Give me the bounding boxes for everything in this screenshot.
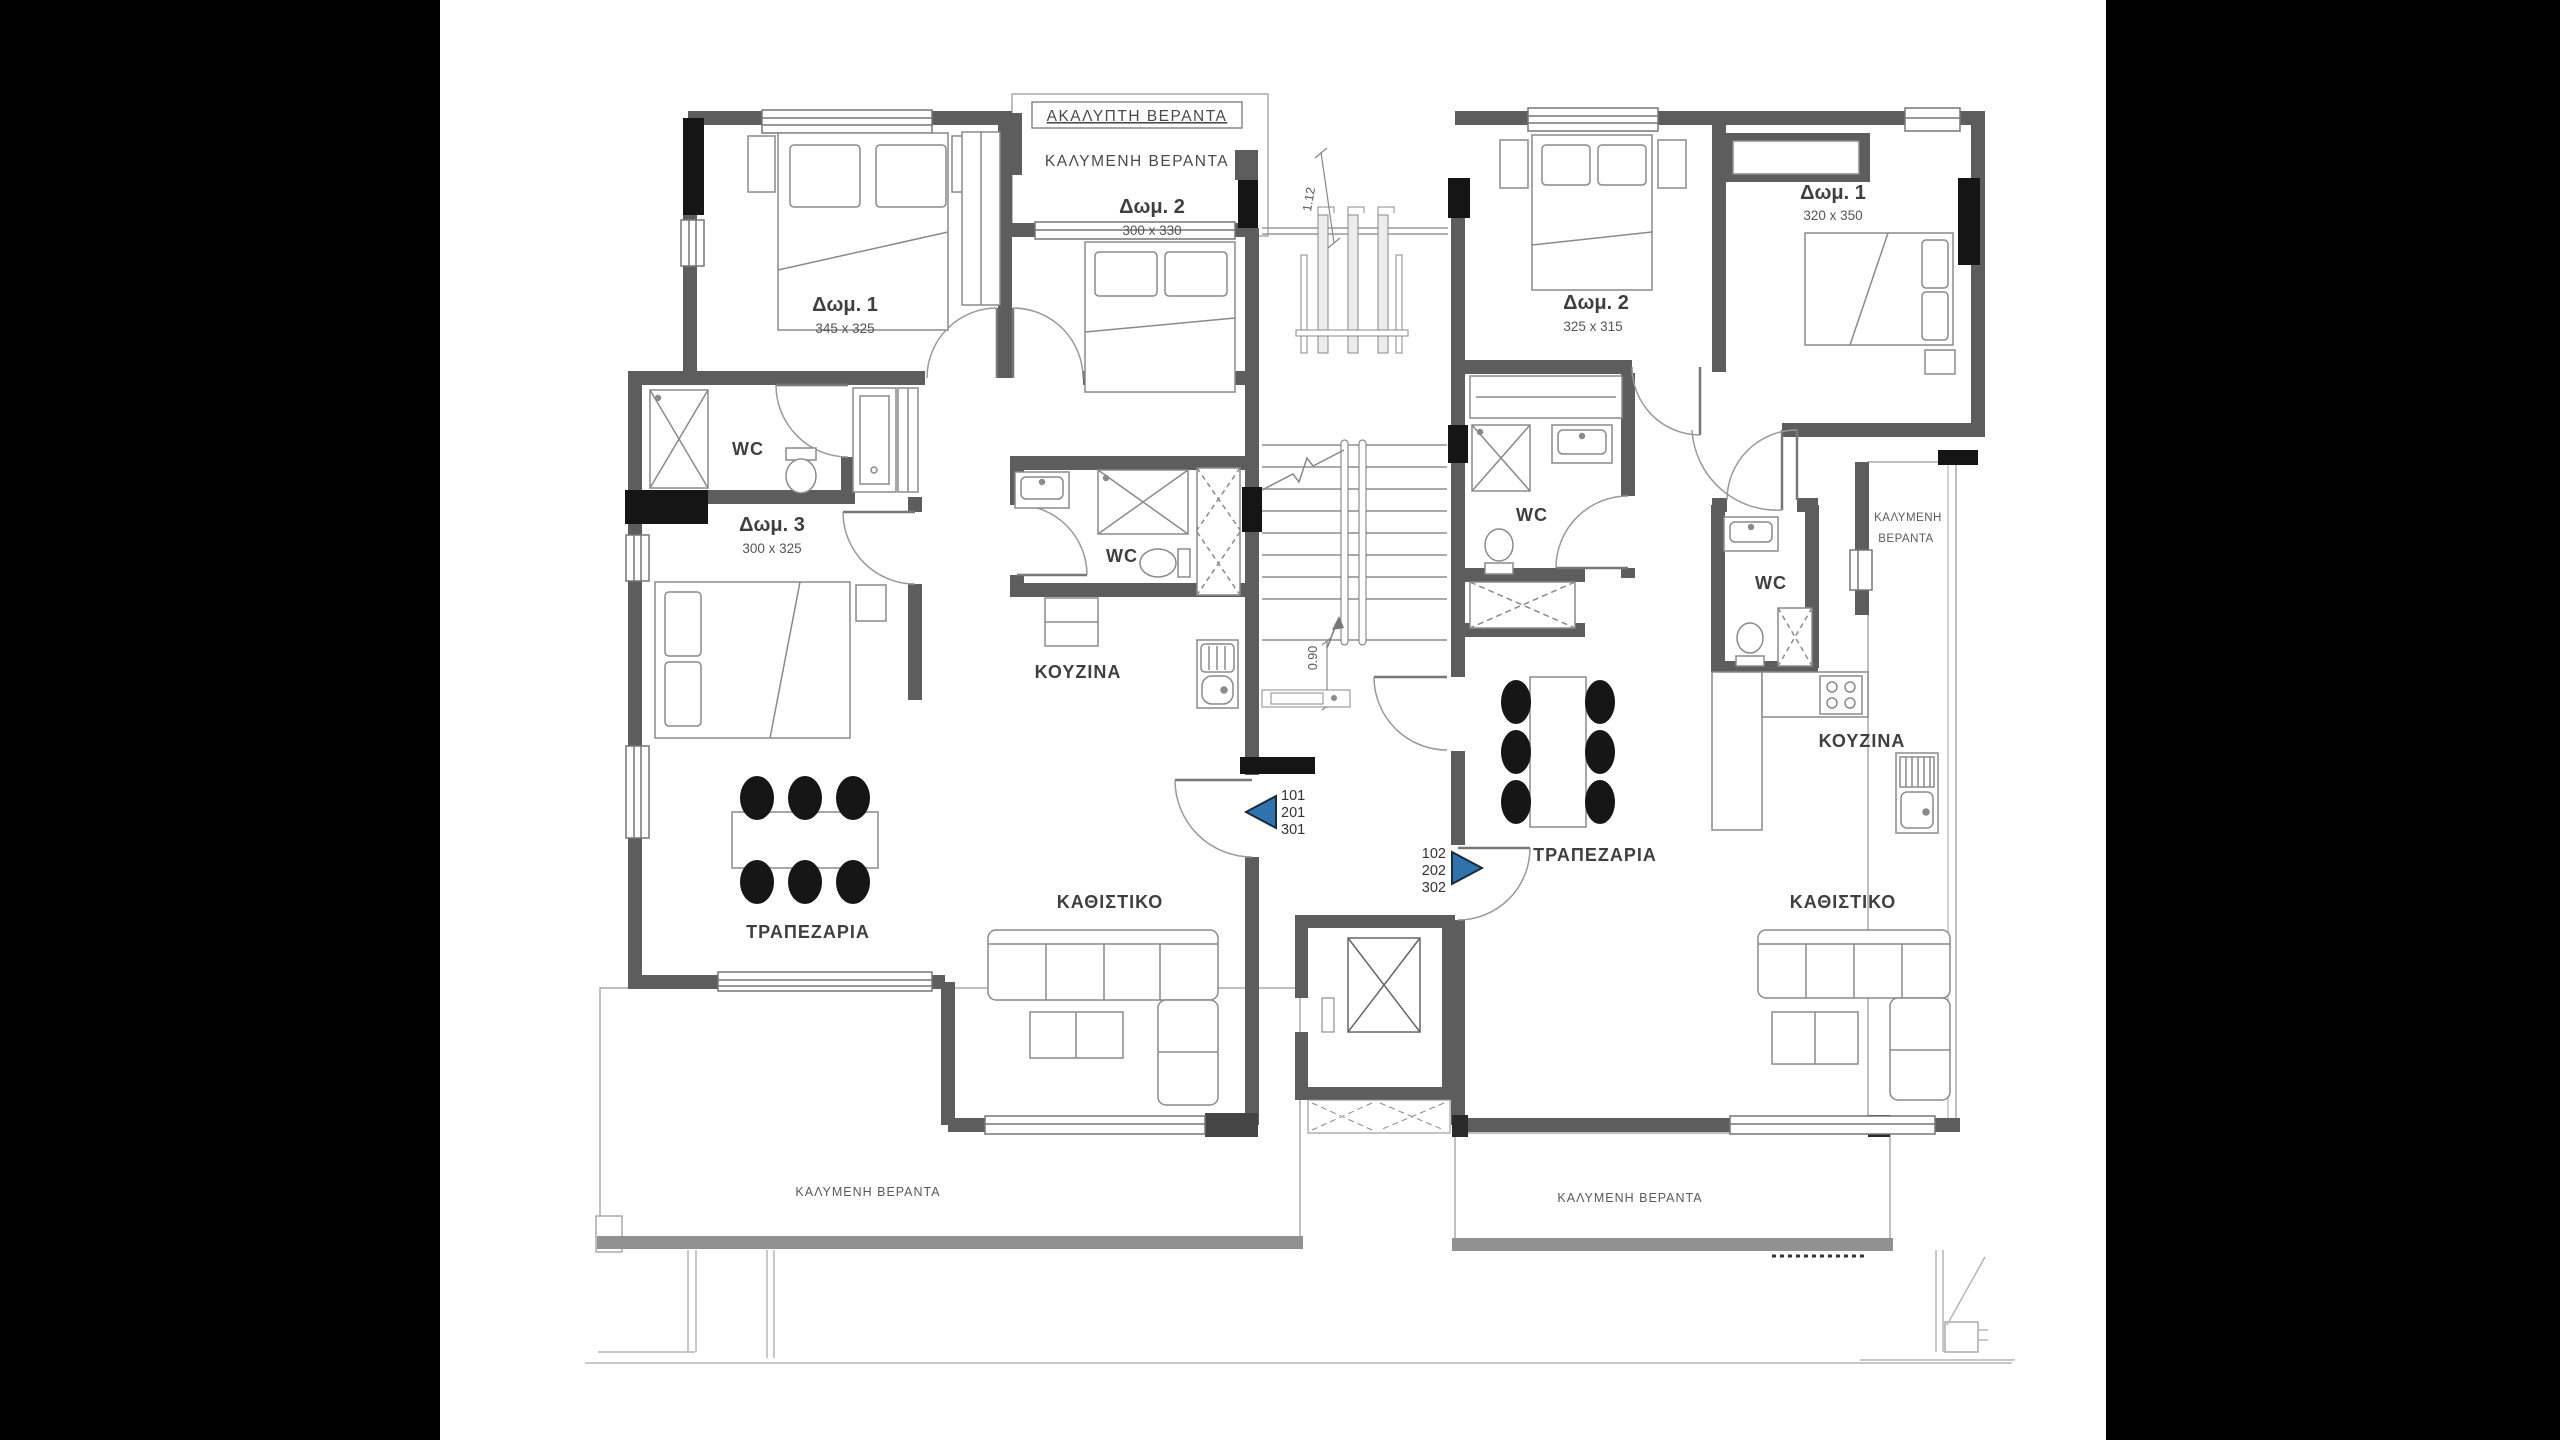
- stair-dim-label: 0.90: [1306, 646, 1320, 670]
- left-bed3-dims: 300 x 325: [742, 541, 801, 556]
- left-furniture: [650, 132, 1240, 1105]
- staircase: 0.90: [1262, 207, 1447, 710]
- right-living-label: ΚΑΘΙΣΤΙΚΟ: [1790, 892, 1897, 912]
- dim-112-label: 1.12: [1300, 186, 1318, 212]
- door-left-entry: [1175, 780, 1252, 857]
- right-kitchen-label: ΚΟΥΖΙΝΑ: [1819, 731, 1906, 751]
- left-wc2-label: WC: [1106, 546, 1138, 566]
- door-right-wc1: [1556, 496, 1628, 568]
- left-living-label: ΚΑΘΙΣΤΙΚΟ: [1057, 892, 1164, 912]
- landing-sink: [1262, 690, 1350, 707]
- left-kitchen-counters: [1045, 598, 1238, 708]
- right-bed1-closet: [1722, 133, 1870, 182]
- elevator-car: [1348, 938, 1420, 1032]
- left-dining-label: ΤΡΑΠΕΖΑΡΙΑ: [746, 922, 870, 942]
- right-bed2-label: Δωμ. 2: [1563, 292, 1629, 314]
- left-hall-wardrobe: [853, 388, 918, 492]
- window-right-living-south: [1730, 1116, 1935, 1134]
- right-wc2-sink: [1724, 517, 1778, 551]
- rear-shaft: [1308, 1100, 1450, 1133]
- uncovered-veranda-label: ΑΚΑΛΥΠΤΗ ΒΕΡΑΝΤΑ: [1047, 108, 1228, 125]
- window-right-bed2-north: [1528, 108, 1658, 131]
- left-veranda-label: ΚΑΛΥΜΕΝΗ ΒΕΡΑΝΤΑ: [795, 1185, 940, 1199]
- door-left-bed3: [843, 512, 915, 584]
- right-wc2-toilet: [1736, 623, 1764, 666]
- left-wc2-shower: [1098, 470, 1188, 534]
- left-bed3: [655, 582, 886, 738]
- door-right-corridor: [1632, 367, 1700, 435]
- right-wc1-label: WC: [1516, 505, 1548, 525]
- door-right-bedhall: [1692, 430, 1782, 510]
- right-shaft: [1470, 582, 1575, 628]
- window-left-west-lower: [626, 746, 649, 838]
- screenshot-stage: 0.90: [0, 0, 2560, 1440]
- right-entry-arrow: [1452, 852, 1482, 884]
- right-bed1-dims: 320 x 350: [1803, 208, 1862, 223]
- right-bed2: [1500, 135, 1686, 290]
- left-kitchen-label: ΚΟΥΖΙΝΑ: [1035, 662, 1122, 682]
- window-right-veranda-west: [1850, 550, 1872, 590]
- left-wc1-toilet: [786, 448, 816, 493]
- door-right-entry: [1458, 848, 1530, 920]
- left-wc1-shower: [650, 390, 708, 488]
- left-wc2-toilet: [1140, 549, 1190, 577]
- right-side-veranda-line2: ΒΕΡΑΝΤΑ: [1878, 533, 1933, 545]
- right-dining-table: [1530, 677, 1586, 827]
- window-left-west-upper: [681, 220, 704, 266]
- right-wc1-toilet: [1485, 529, 1513, 574]
- stair-break-line: [1262, 450, 1344, 490]
- covered-veranda-top-label: ΚΑΛΥΜΕΝΗ ΒΕΡΑΝΤΑ: [1045, 153, 1229, 170]
- left-bed1-label: Δωμ. 1: [812, 294, 878, 316]
- door-left-bed2: [1013, 308, 1083, 378]
- left-unit-101: 101: [1281, 788, 1305, 804]
- right-dining-label: ΤΡΑΠΕΖΑΡΙΑ: [1533, 845, 1657, 865]
- left-bed2: [1085, 242, 1235, 392]
- elevator: [1295, 915, 1455, 1133]
- right-veranda-label: ΚΑΛΥΜΕΝΗ ΒΕΡΑΝΤΑ: [1557, 1191, 1702, 1205]
- left-bed3-label: Δωμ. 3: [739, 514, 805, 536]
- left-wc1-label: WC: [732, 439, 764, 459]
- stair-treads: [1262, 445, 1447, 640]
- right-wc1-shower: [1472, 425, 1530, 491]
- right-side-veranda-line1: ΚΑΛΥΜΕΝΗ: [1874, 512, 1942, 524]
- right-unit-202: 202: [1422, 863, 1446, 879]
- stair-stringer: [1341, 440, 1366, 645]
- right-wc2-shower: [1778, 608, 1812, 666]
- left-wc2-shaft: [1197, 468, 1240, 595]
- left-dining-table: [732, 812, 878, 868]
- window-left-west-mid: [626, 535, 649, 581]
- veranda-slab-edges: [597, 1236, 1893, 1251]
- right-wc1-sink: [1552, 425, 1612, 463]
- elevator-door: [1322, 998, 1334, 1032]
- door-left-wc2: [1017, 505, 1087, 575]
- window-left-living-south: [985, 1116, 1205, 1134]
- left-unit-201: 201: [1281, 805, 1305, 821]
- left-wc2-sink: [1015, 472, 1069, 508]
- window-left-dining-south: [718, 972, 932, 991]
- door-left-wc1: [776, 385, 848, 457]
- left-bed1-dims: 345 x 325: [815, 321, 874, 336]
- door-core-upper: [1374, 677, 1447, 750]
- right-bed2-dims: 325 x 315: [1563, 319, 1622, 334]
- left-bed2-label: Δωμ. 2: [1119, 196, 1185, 218]
- right-wc2-label: WC: [1755, 573, 1787, 593]
- service-pipes: [1296, 207, 1408, 353]
- right-bed1-label: Δωμ. 1: [1800, 182, 1866, 204]
- right-unit-102: 102: [1422, 846, 1446, 862]
- floor-plan-svg: 0.90: [0, 0, 2560, 1440]
- right-bed1: [1805, 233, 1955, 374]
- window-right-east-north: [1905, 108, 1960, 131]
- right-unit-302: 302: [1422, 880, 1446, 896]
- right-wc1-closet: [1470, 376, 1622, 418]
- corner-fixture: [1945, 1322, 1978, 1352]
- window-left-bed1-north: [762, 110, 932, 133]
- left-bed2-dims: 300 x 330: [1122, 223, 1181, 238]
- left-entry-arrow: [1246, 796, 1276, 828]
- door-right-wc2: [1727, 430, 1797, 500]
- right-bottom-veranda: [1455, 1133, 1890, 1240]
- left-unit-301: 301: [1281, 822, 1305, 838]
- unit-markers: 101 201 301 102 202 302: [1246, 788, 1482, 896]
